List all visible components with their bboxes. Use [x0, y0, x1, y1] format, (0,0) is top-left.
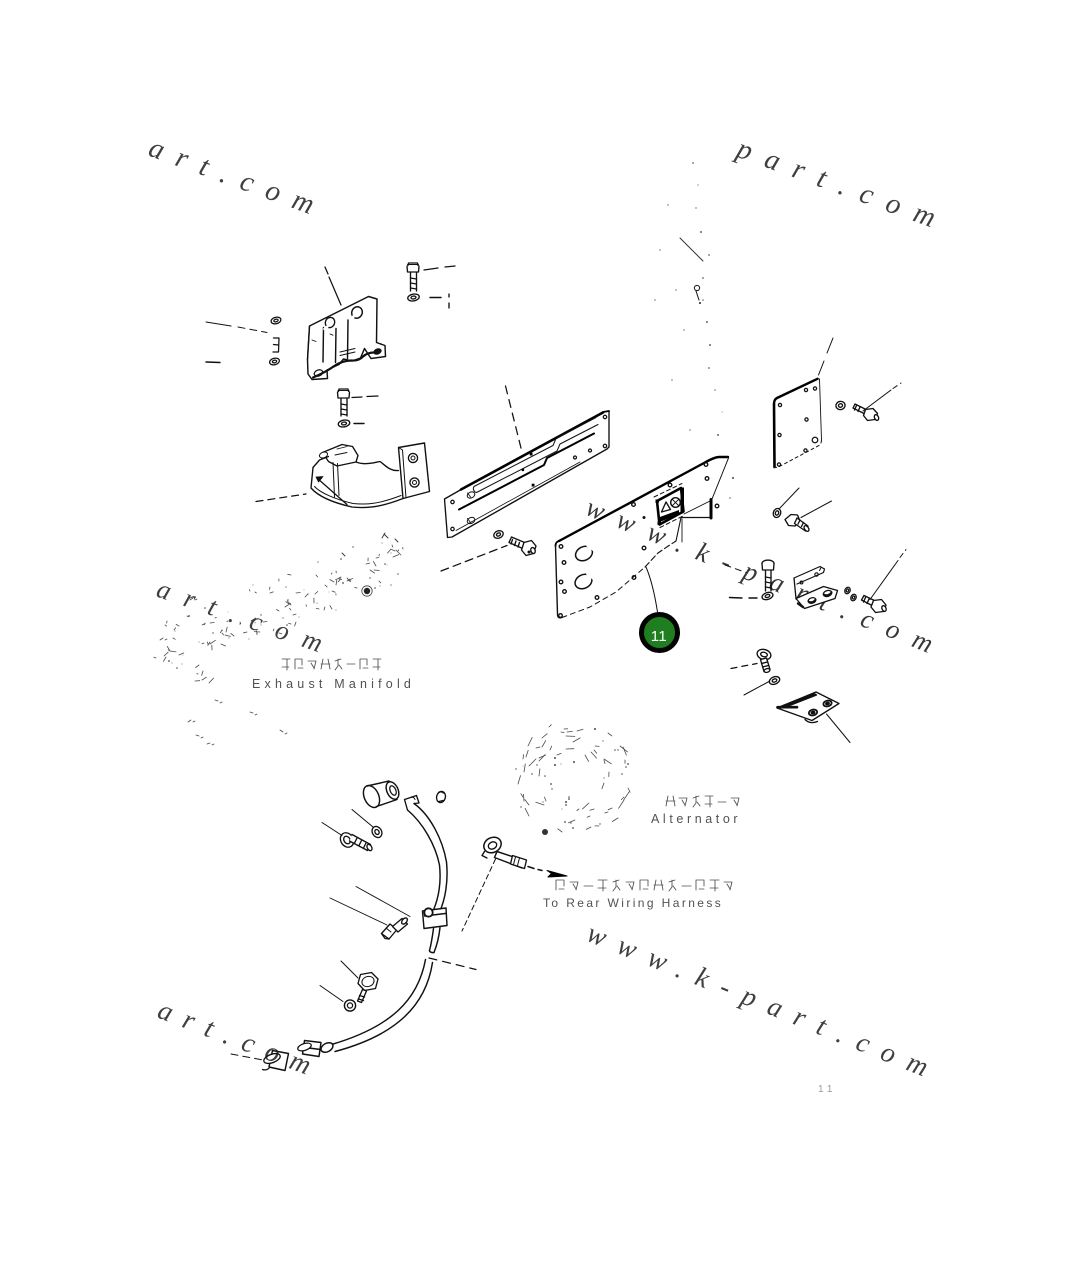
svg-text:art.com: art.com	[145, 132, 332, 226]
svg-text:art.com: art.com	[153, 573, 341, 663]
svg-text:www.k-part.com: www.k-part.com	[582, 492, 952, 665]
svg-text:Exhaust Manifold: Exhaust Manifold	[252, 677, 415, 691]
svg-text:www.k-part.com: www.k-part.com	[582, 918, 945, 1089]
svg-text:11: 11	[818, 1084, 836, 1095]
svg-text:11: 11	[651, 628, 668, 645]
svg-text:art.com: art.com	[153, 995, 326, 1086]
svg-text:part.com: part.com	[731, 132, 954, 239]
svg-text:Alternator: Alternator	[651, 812, 741, 826]
svg-text:To Rear Wiring Harness: To Rear Wiring Harness	[543, 896, 723, 910]
